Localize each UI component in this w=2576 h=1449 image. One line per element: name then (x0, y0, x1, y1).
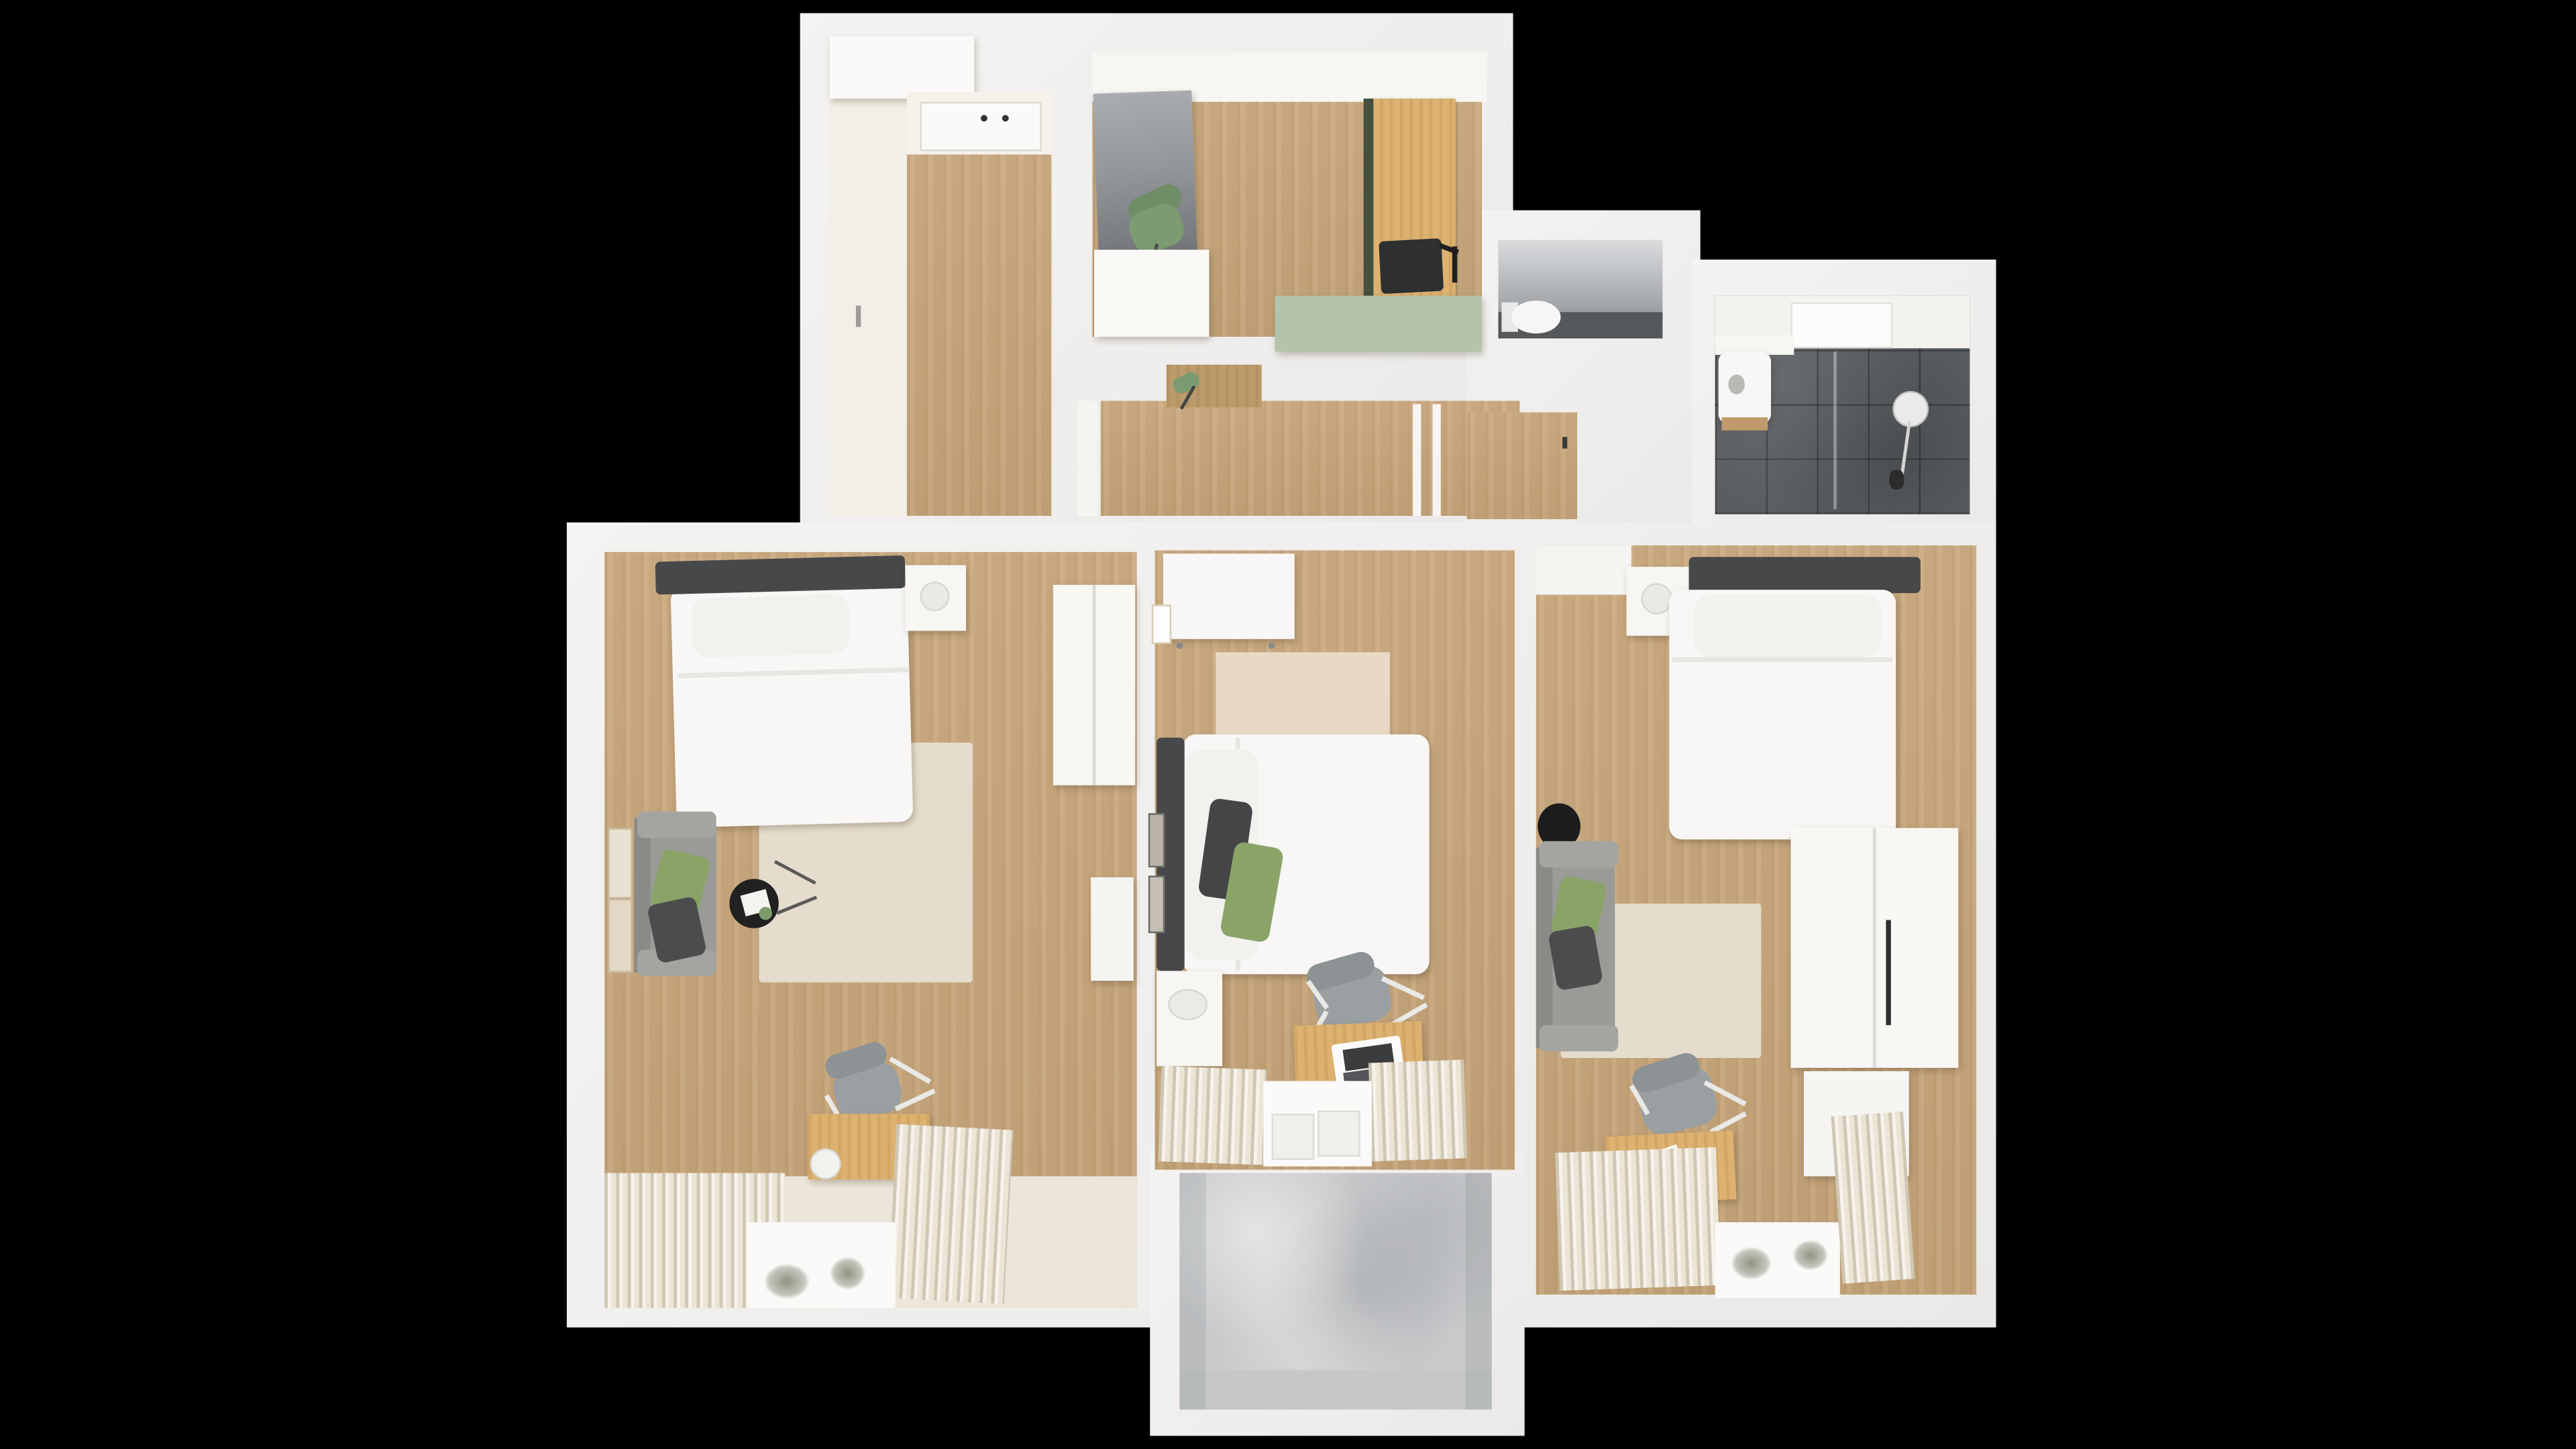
hallway-wall-hook (1562, 437, 1567, 448)
bedroom-right-curtain (1555, 1147, 1721, 1291)
floorplan-canvas (0, 0, 2576, 1449)
bedroom-right-pillow (1694, 595, 1881, 657)
bedroom-left-sofa-armrest (637, 812, 716, 838)
bedroom-left-green-dot (759, 907, 772, 920)
bedroom-middle-window-pane (1318, 1111, 1360, 1157)
bedroom-left-wardrobe-seam (1093, 585, 1096, 786)
bedroom-right-duvet-fold (1672, 657, 1892, 662)
kitchen-cooktop (920, 102, 1041, 151)
bedroom-left-nightstand-knob (920, 582, 949, 611)
bedroom-left-desk-lamp (810, 1148, 841, 1180)
page-root: { "scene": { "width": 1568, "height": 88… (0, 0, 2576, 1449)
bedroom-left-curtain (888, 1124, 1013, 1304)
bedroom-middle-dresser-leg (1269, 643, 1275, 649)
bedroom-left-headboard (655, 555, 906, 595)
bathroom-sink (1719, 352, 1771, 424)
kitchen-floor (907, 154, 1052, 516)
hallway-floor (1101, 401, 1519, 516)
bedroom-middle-headboard-panel (1216, 652, 1390, 741)
study-monitor (1379, 238, 1444, 294)
kitchen-cabinet-handle (856, 306, 861, 327)
bedroom-left-wall-frame (608, 828, 633, 898)
hallway-wc-floor (1467, 413, 1577, 519)
bedroom-right-headboard (1689, 557, 1921, 593)
study-lamp-pole (1452, 246, 1457, 282)
bedroom-middle-curtain (1368, 1060, 1467, 1162)
bedroom-right-nightstand-knob (1642, 583, 1673, 614)
balcony-floor (1179, 1370, 1491, 1409)
bathroom-light-box (1790, 303, 1892, 349)
study-cabinet (1094, 250, 1209, 337)
bathroom-sink-wood-trim (1722, 417, 1768, 431)
balcony-shade (1465, 1173, 1491, 1410)
bedroom-left-wall-frame (608, 899, 633, 973)
bathroom-glass-panel (1833, 352, 1837, 509)
bedroom-left-window-plant (757, 1258, 816, 1305)
bedroom-left-pillow (691, 594, 851, 658)
toilet-bowl (1511, 301, 1560, 333)
bedroom-middle-dresser-leg (1176, 643, 1183, 649)
bedroom-middle-window-pane (1272, 1114, 1315, 1160)
bedroom-middle-wall-frame (1152, 604, 1171, 644)
bathroom-shower-head (1889, 470, 1904, 489)
bedroom-middle-wall-frame (1148, 813, 1165, 867)
bedroom-middle-curtain (1159, 1066, 1267, 1165)
bedroom-right-soffit (1536, 545, 1631, 594)
hallway-door-frame (1413, 404, 1421, 516)
bedroom-right-wardrobe-gap (1886, 920, 1890, 1025)
bathroom-sink-drain (1728, 374, 1744, 394)
bedroom-right-sofa-armrest (1540, 1025, 1619, 1051)
bedroom-right-wardrobe-seam (1873, 828, 1876, 1068)
study-table-sage (1275, 296, 1482, 352)
bedroom-middle-nightstand-knob (1168, 989, 1207, 1020)
kitchen-counter-left (830, 92, 907, 516)
bedroom-middle-wall-frame (1148, 875, 1165, 933)
hallway-door-frame (1433, 404, 1441, 516)
bedroom-middle-dresser (1163, 553, 1295, 639)
bedroom-right-sofa-armrest (1540, 841, 1619, 867)
bedroom-right-window-plant (1725, 1242, 1777, 1285)
kitchen-knob (1002, 115, 1009, 121)
kitchen-knob (981, 115, 987, 121)
balcony-shade (1179, 1173, 1205, 1410)
kitchen-upper-cabinet (830, 36, 975, 99)
bedroom-right-curtain (1831, 1112, 1915, 1284)
bedroom-left-window-plant (824, 1252, 871, 1295)
study-desk-edge (1364, 99, 1374, 299)
balcony-wall (1179, 1173, 1491, 1371)
bedroom-left-cabinet (1091, 877, 1134, 981)
hallway-door-frame (1078, 401, 1097, 516)
bedroom-right-window-plant (1787, 1236, 1833, 1275)
